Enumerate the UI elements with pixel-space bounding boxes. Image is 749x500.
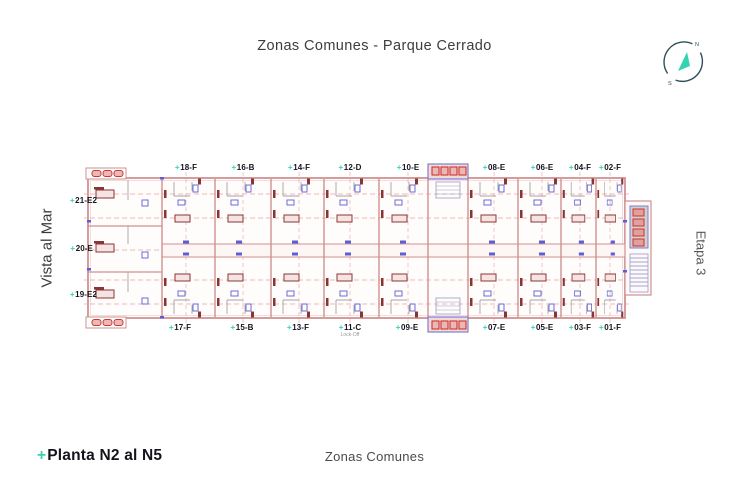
page-title: Zonas Comunes - Parque Cerrado [0,38,749,54]
unit-label-text: 14-F [293,163,310,172]
unit-label-18F: +18-F [175,164,197,173]
lockoff-sublabel: Lock-Off [339,333,362,339]
unit-label-text: 07-E [488,323,505,332]
unit-label-07E: +07-E [483,324,506,333]
unit-label-text: 01-F [604,323,621,332]
unit-label-text: 05-E [536,323,553,332]
unit-label-17F: +17-F [169,324,191,333]
unit-label-20E: +20-E [70,245,93,254]
floor-plan-drawing [84,160,664,338]
unit-label-text: 15-B [236,323,254,332]
unit-label-text: 10-E [402,163,419,172]
unit-label-05E: +05-E [531,324,554,333]
unit-label-text: 06-E [536,163,553,172]
unit-label-text: 13-F [292,323,309,332]
unit-label-01F: +01-F [599,324,621,333]
unit-label-text: 18-F [180,163,197,172]
unit-label-text: 02-F [604,163,621,172]
unit-label-13F: +13-F [287,324,309,333]
unit-label-11C: +11-CLock-Off [339,324,362,338]
unit-label-text: 20-E [76,244,93,253]
compass-icon: N S [660,38,710,88]
central-corridor [162,244,625,257]
unit-label-19E2: +19-E2 [70,291,97,300]
unit-label-text: 09-E [401,323,418,332]
unit-label-16B: +16-B [231,164,254,173]
unit-label-12D: +12-D [338,164,361,173]
compass-south-label: S [668,81,672,87]
unit-label-14F: +14-F [288,164,310,173]
unit-label-text: 21-E2 [75,196,97,205]
unit-label-02F: +02-F [599,164,621,173]
unit-label-text: 11-C [344,323,361,332]
compass-north-label: N [695,42,699,48]
unit-label-08E: +08-E [483,164,506,173]
unit-label-text: 08-E [488,163,505,172]
unit-label-text: 19-E2 [75,290,97,299]
unit-label-15B: +15-B [230,324,253,333]
unit-label-text: 12-D [344,163,362,172]
compass-needle-icon [678,52,690,71]
unit-label-text: 03-F [574,323,591,332]
unit-label-10E: +10-E [397,164,420,173]
right-end-stairs [625,201,651,295]
page: Zonas Comunes - Parque Cerrado N S Vista… [0,0,749,500]
unit-label-21E2: +21-E2 [70,197,97,206]
balcony-bottom-left [86,317,126,328]
unit-label-text: 16-B [237,163,255,172]
unit-label-text: 04-F [574,163,591,172]
left-side-label: Vista al Mar [39,209,56,288]
footer-subtitle: Zonas Comunes [0,449,749,464]
right-side-label: Etapa 3 [694,231,709,276]
unit-label-04F: +04-F [569,164,591,173]
unit-label-09E: +09-E [396,324,419,333]
compass-ring-arc [676,53,703,82]
balcony-top-left [86,168,126,179]
unit-label-06E: +06-E [531,164,554,173]
unit-label-text: 17-F [174,323,191,332]
unit-label-03F: +03-F [569,324,591,333]
